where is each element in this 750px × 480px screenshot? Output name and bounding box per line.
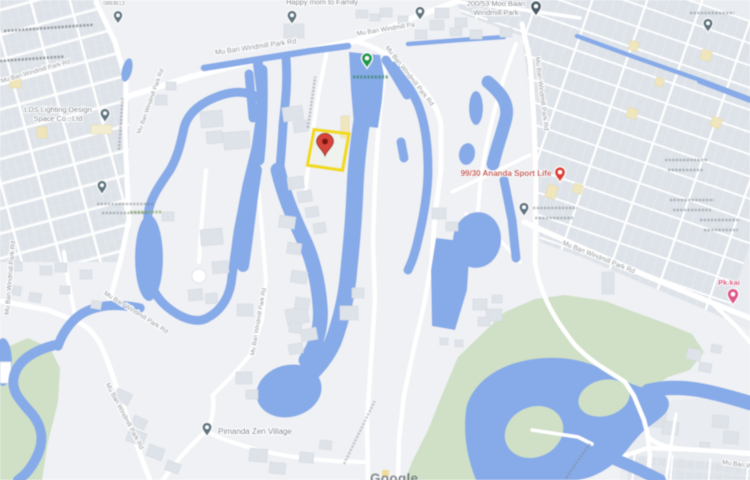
svg-text:Windmill Park: Windmill Park bbox=[473, 8, 518, 17]
svg-text:0893613: 0893613 bbox=[103, 1, 124, 7]
svg-text:200/53 Moo Baan: 200/53 Moo Baan bbox=[467, 0, 525, 8]
svg-text:LDS Lighting Design: LDS Lighting Design bbox=[24, 105, 91, 114]
svg-text:99/30 Ananda Sport Life: 99/30 Ananda Sport Life bbox=[461, 169, 552, 178]
svg-text:Happy mom to Family: Happy mom to Family bbox=[286, 0, 358, 7]
svg-text:Pk.kai: Pk.kai bbox=[718, 278, 740, 287]
svg-text:Google: Google bbox=[370, 471, 418, 480]
svg-text:Space Co., Ltd: Space Co., Ltd bbox=[34, 114, 83, 123]
svg-text:Pimanda Zen Village: Pimanda Zen Village bbox=[218, 427, 292, 436]
